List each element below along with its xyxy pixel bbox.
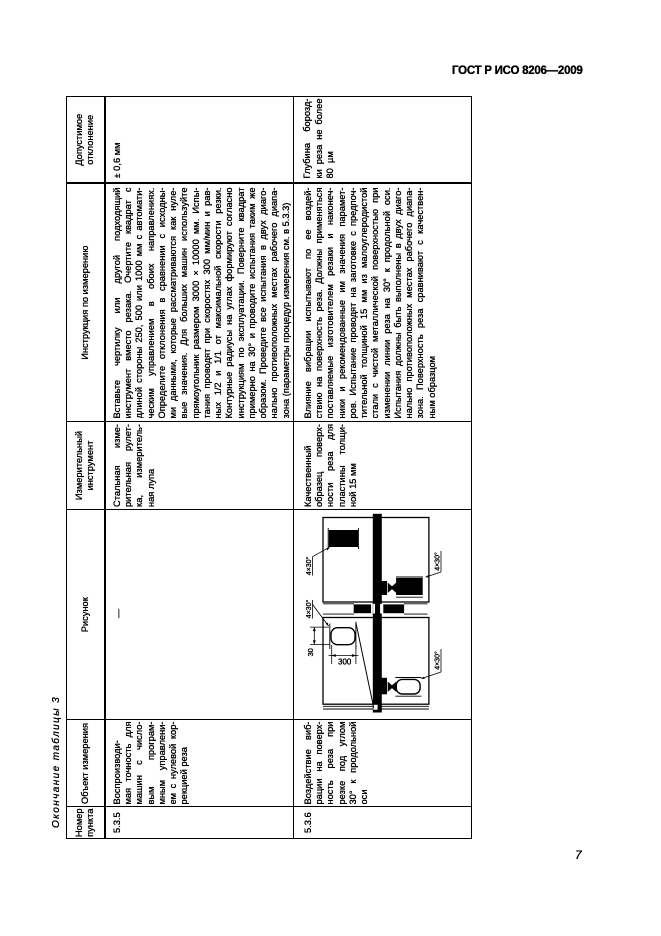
svg-text:300: 300 bbox=[338, 658, 352, 667]
svg-text:4×30°: 4×30° bbox=[433, 651, 441, 670]
svg-text:4×30°: 4×30° bbox=[305, 600, 313, 619]
svg-text:4×30°: 4×30° bbox=[305, 557, 313, 576]
svg-text:4×30°: 4×30° bbox=[433, 552, 441, 571]
svg-text:30: 30 bbox=[306, 648, 315, 656]
